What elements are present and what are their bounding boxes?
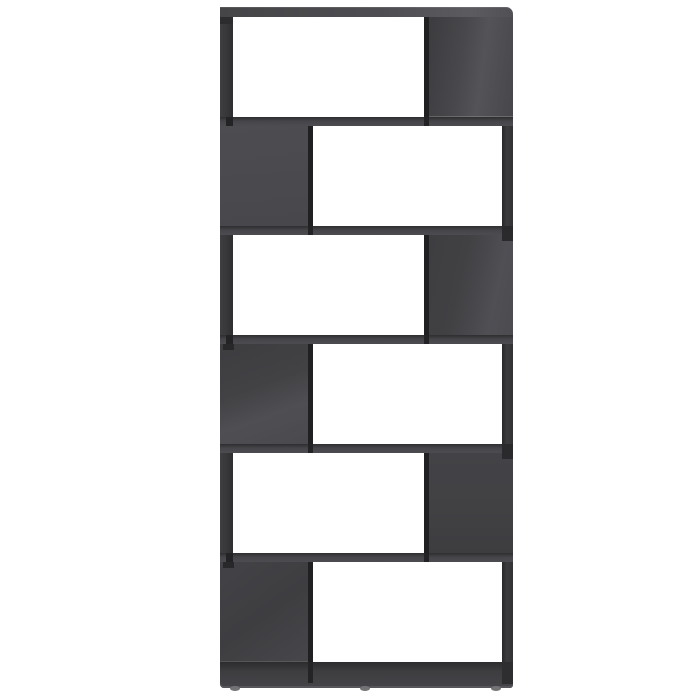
- bookcase-base-panel: [220, 662, 513, 688]
- side-panel-edge: [502, 444, 513, 453]
- side-panel-edge: [220, 17, 233, 117]
- bookcase-top-panel: [220, 7, 513, 17]
- shelf-row-compartment-4: [220, 344, 513, 444]
- side-panel-edge: [220, 235, 233, 335]
- offset-back-panel: [429, 453, 513, 553]
- side-panel-edge: [226, 117, 233, 126]
- compartment-opening: [313, 562, 502, 662]
- divider-panel-edge: [424, 117, 429, 126]
- side-panel-edge: [226, 335, 233, 344]
- shelf-board: [220, 226, 513, 235]
- foot-3: [491, 686, 501, 691]
- compartment-opening: [233, 453, 424, 553]
- shelf-board: [220, 444, 513, 453]
- shelf-row-compartment-5: [220, 453, 513, 553]
- side-panel-edge: [220, 453, 233, 553]
- compartment-opening: [313, 126, 502, 226]
- bookcase: [220, 7, 513, 688]
- foot-1: [230, 686, 240, 691]
- compartment-opening: [233, 235, 424, 335]
- divider-panel-edge: [308, 226, 313, 235]
- offset-back-panel: [220, 562, 308, 662]
- side-panel-edge: [502, 344, 513, 444]
- shelf-row-compartment-1: [220, 17, 513, 117]
- shelf-board: [220, 117, 513, 126]
- shelf-board: [220, 553, 513, 562]
- side-panel-edge: [502, 226, 513, 235]
- bookcase-rows: [220, 17, 513, 662]
- side-panel-edge: [502, 562, 513, 662]
- product-photo: [0, 0, 700, 700]
- offset-back-panel: [429, 235, 513, 335]
- divider-panel-edge: [308, 662, 313, 683]
- foot-2: [360, 686, 370, 691]
- divider-panel-edge: [308, 444, 313, 453]
- compartment-opening: [233, 17, 424, 117]
- side-panel-edge: [502, 126, 513, 226]
- offset-back-panel: [220, 126, 308, 226]
- divider-panel-edge: [424, 553, 429, 562]
- compartment-opening: [313, 344, 502, 444]
- side-panel-edge: [226, 553, 233, 562]
- offset-back-panel: [429, 17, 513, 117]
- shelf-row-compartment-3: [220, 235, 513, 335]
- shelf-board: [220, 335, 513, 344]
- offset-back-panel: [220, 344, 308, 444]
- divider-panel-edge: [424, 335, 429, 344]
- shelf-row-compartment-6: [220, 562, 513, 662]
- shelf-row-compartment-2: [220, 126, 513, 226]
- side-panel-edge: [502, 662, 513, 684]
